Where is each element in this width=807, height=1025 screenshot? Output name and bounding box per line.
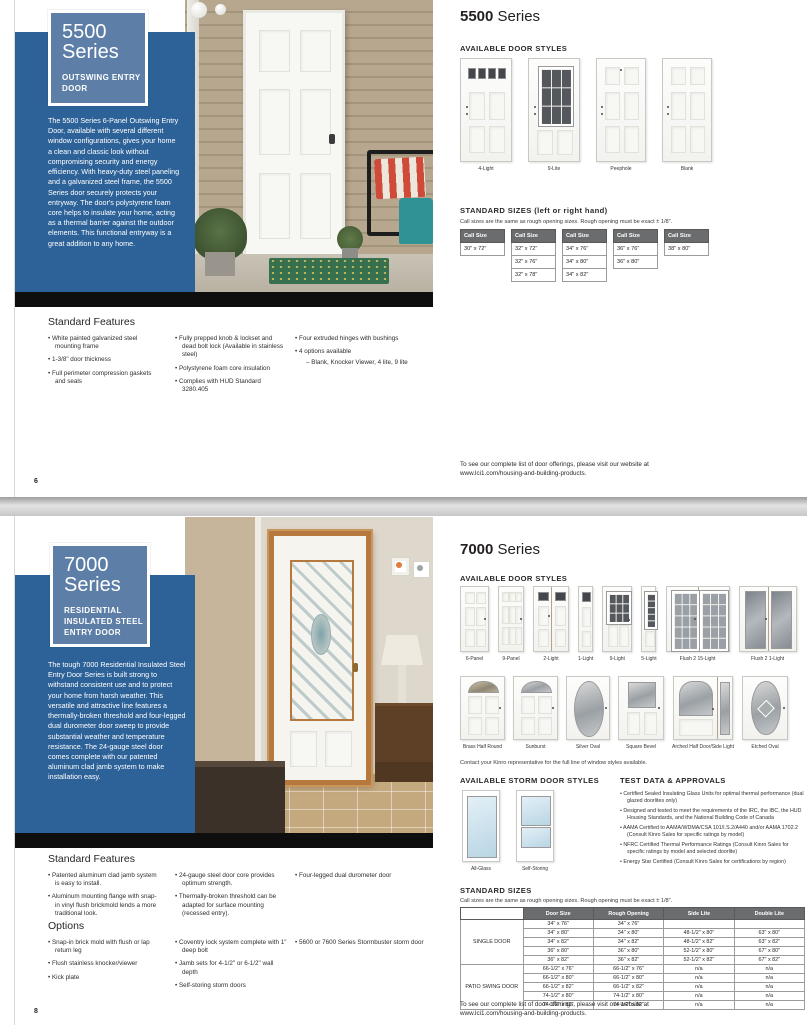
catalog-spread: 5500 Series OUTSWING ENTRY DOOR The 5500… [0, 0, 807, 1025]
door-style-label: Etched Oval [751, 744, 778, 750]
sizes-table-cell: 66-1/2" x 76" [523, 965, 593, 974]
page-number: 6 [34, 478, 38, 485]
door-style-light9: 9-Light [602, 586, 632, 662]
feature-bullet: Blank, Knocker Viewer, 4 lite, 9 lite [295, 359, 445, 367]
porch-light-globe [191, 2, 207, 18]
door-style-label: 6-Panel [466, 656, 483, 662]
door-image-squarebevel [618, 676, 664, 740]
page-title-number: 5500 [460, 8, 493, 25]
feature-bullet: Full perimeter compression gaskets and s… [48, 370, 161, 386]
page-divider [0, 497, 807, 516]
sizes-table-column-header: Double Lite [734, 908, 804, 920]
call-size-cell: 30" x 72" [461, 243, 505, 256]
sizes-table-cell: 52-1/2" x 82" [664, 956, 734, 965]
door-style-etchedoval: Etched Oval [742, 676, 788, 750]
sizes-table-cell: 66-1/2" x 80" [593, 974, 663, 983]
sizes-table-cell: 34" x 80" [593, 929, 663, 938]
sizes-table-cell: 36" x 82" [523, 956, 593, 965]
door-style-sunburst: Sunburst [513, 676, 558, 750]
sizes-table-cell: 66-1/2" x 82" [523, 983, 593, 992]
feature-bullet: Thermally-broken threshold can be adapte… [175, 893, 287, 918]
sizes-note-5500: Call sizes are the same as rough opening… [460, 219, 672, 225]
door-image-peephole [596, 58, 646, 162]
door-image-lite9 [528, 58, 580, 162]
call-size-cell: 32" x 76" [512, 256, 556, 269]
door-image-light5 [641, 586, 656, 652]
black-band [15, 292, 433, 307]
doormat [269, 258, 389, 284]
call-size-cell: 38" x 80" [665, 243, 709, 256]
options-7000: OptionsSnap-in brick mold with flush or … [48, 920, 448, 995]
page-title-word: Series [493, 541, 540, 558]
test-data-bullet: NFRC Certified Thermal Performance Ratin… [620, 842, 806, 856]
page-title-5500: 5500 Series [460, 8, 540, 25]
door-style-label: Brass Half Round [463, 744, 502, 750]
sizes-table-cell: 34" x 82" [523, 938, 593, 947]
sizes-table-cell: 34" x 76" [523, 920, 593, 929]
footer-7000: To see our complete list of door offerin… [460, 1000, 649, 1018]
features-columns: Snap-in brick mold with flush or lap ret… [48, 939, 448, 995]
feature-bullet: Jamb sets for 4-1/2" or 6-1/2" wall dept… [175, 960, 287, 976]
sizes-table-cell: 66-1/2" x 76" [593, 965, 663, 974]
door-style-blank: Blank [662, 58, 712, 172]
door-image-etchedoval [742, 676, 788, 740]
test-data-list: Certified Sealed Insulating Glass Units … [620, 791, 806, 866]
art-dot-orange [396, 562, 402, 568]
sizes-table-cell: 48-1/2" x 82" [664, 938, 734, 947]
test-data-heading: TEST DATA & APPROVALS [620, 776, 806, 785]
feature-bullet: Four-legged dual durometer door [295, 872, 445, 880]
door-style-label: Flush 2 15-Light [680, 656, 716, 662]
feature-bullet: Coventry lock system complete with 1" de… [175, 939, 287, 955]
footer-5500: To see our complete list of door offerin… [460, 460, 649, 478]
features-heading: Standard Features [48, 853, 448, 865]
badge-subtitle: OUTSWING ENTRY DOOR [62, 72, 150, 94]
feature-bullet: Self-storing storm doors [175, 982, 287, 990]
test-data-bullet: AAMA Certified to AAMA/WDMA/CSA 101/I.S.… [620, 825, 806, 839]
plant-pot [205, 252, 235, 276]
sizes-table-cell: 67" x 80" [734, 947, 804, 956]
badge-word: Series [64, 575, 139, 595]
sizes-table-cell: 63" x 80" [734, 929, 804, 938]
page-number: 8 [34, 1008, 38, 1015]
feature-bullet: 1-3/8" door thickness [48, 356, 161, 364]
call-size-header: Call Size [665, 230, 709, 243]
sizes-table-group-label: SINGLE DOOR [461, 920, 524, 965]
door-styles-row-5500: 4-Light9-LitePeepholeBlank [460, 58, 712, 172]
feature-bullet: Kick plate [48, 974, 161, 982]
standard-sizes-heading-7000: STANDARD SIZES [460, 886, 532, 895]
sizes-table-cell: 48-1/2" x 80" [664, 929, 734, 938]
sizes-table-cell: n/a [664, 965, 734, 974]
door-image-ovalsilver [566, 676, 610, 740]
nightstand [375, 703, 433, 782]
call-size-header: Call Size [512, 230, 556, 243]
series-badge-5500: 5500 Series OUTSWING ENTRY DOOR [48, 10, 148, 106]
glass-medallion [311, 614, 331, 655]
sizes-table-cell: 34" x 76" [593, 920, 663, 929]
call-size-table: Call Size34" x 76"34" x 80"34" x 82" [562, 229, 607, 282]
door-style-label: 4-Light [478, 166, 493, 172]
sizes-table-column-header: Door Size [523, 908, 593, 920]
door-style-p9: 9-Panel [498, 586, 524, 662]
call-size-header: Call Size [563, 230, 607, 243]
badge-subtitle: RESIDENTIAL INSULATED STEEL ENTRY DOOR [64, 605, 152, 639]
door-style-label: 9-Lite [548, 166, 561, 172]
standard-sizes-table: Door SizeRough OpeningSide LiteDouble Li… [460, 907, 805, 1010]
feature-bullet: 5600 or 7600 Series Stormbuster storm do… [295, 939, 445, 947]
badge-word: Series [62, 42, 137, 62]
call-size-table: Call Size36" x 76"36" x 80" [613, 229, 658, 269]
footer-link[interactable]: www.lci1.com/housing-and-building-produc… [460, 469, 649, 478]
features-column: 24-gauge steel door core provides optimu… [175, 872, 287, 923]
door-styles-heading-7000: AVAILABLE DOOR STYLES [460, 574, 567, 583]
call-size-cell: 32" x 72" [512, 243, 556, 256]
door-image-light1 [578, 586, 593, 652]
feature-bullet: Snap-in brick mold with flush or lap ret… [48, 939, 161, 955]
sizes-table-cell: 34" x 80" [523, 929, 593, 938]
sizes-table-cell: 52-1/2" x 80" [664, 947, 734, 956]
sizes-table-corner [461, 908, 524, 920]
door-style-light4: 4-Light [460, 58, 512, 172]
call-size-cell: 34" x 82" [563, 269, 607, 282]
features-column: Coventry lock system complete with 1" de… [175, 939, 287, 995]
door-style-label: Peephole [610, 166, 631, 172]
door-image-allglass [462, 790, 500, 862]
door-style-peephole: Peephole [596, 58, 646, 172]
porch-light-globe-small [215, 4, 226, 15]
door-style-light2: 2-Light [533, 586, 569, 662]
door-style-p6: 6-Panel [460, 586, 489, 662]
door-style-light1: 1-Light [578, 586, 593, 662]
call-size-header: Call Size [614, 230, 658, 243]
art-dot-gray [417, 565, 423, 571]
feature-bullet: 4 options available [295, 348, 445, 356]
features-column: Patented aluminum clad jamb system is ea… [48, 872, 161, 923]
black-band [15, 833, 433, 848]
footer-line1: To see our complete list of door offerin… [460, 460, 649, 469]
photo-5500-exterior [185, 0, 433, 292]
sizes-table-cell [734, 920, 804, 929]
call-size-cell: 36" x 76" [614, 243, 658, 256]
striped-pillow [374, 157, 426, 200]
feature-bullet: Complies with HUD Standard 3280.405 [175, 378, 287, 394]
sizes-table-cell [664, 920, 734, 929]
storm-styles-row: All-GlassSelf-Storing [462, 790, 554, 872]
feature-bullet: Fully prepped knob & lockset and dead bo… [175, 335, 287, 360]
door-image [243, 10, 345, 262]
sizes-table-cell: n/a [734, 992, 804, 1001]
feature-bullet: Four extruded hinges with bushings [295, 335, 445, 343]
door-style-ovalsilver: Silver Oval [566, 676, 610, 750]
sizes-table-cell: n/a [734, 1001, 804, 1010]
call-size-table: Call Size32" x 72"32" x 76"32" x 78" [511, 229, 556, 282]
sizes-table-cell: 34" x 82" [593, 938, 663, 947]
door-image-light2 [533, 586, 569, 652]
door-style-label: 1-Light [578, 656, 593, 662]
door-image-sunburst [513, 676, 558, 740]
feature-bullet: Patented aluminum clad jamb system is ea… [48, 872, 161, 888]
page-title-7000: 7000 Series [460, 541, 540, 558]
door-style-label: Self-Storing [522, 866, 548, 872]
call-size-tables: Call Size30" x 72"Call Size32" x 72"32" … [460, 229, 709, 282]
series-badge-7000: 7000 Series RESIDENTIAL INSULATED STEEL … [50, 543, 150, 647]
test-data-bullet: Certified Sealed Insulating Glass Units … [620, 791, 806, 805]
door-style-selfstoring: Self-Storing [516, 790, 554, 872]
feature-bullet: Aluminum mounting flange with snap-in vi… [48, 893, 161, 918]
sizes-table-cell: 36" x 80" [523, 947, 593, 956]
standard-features-5500: Standard FeaturesWhite painted galvanize… [48, 316, 448, 399]
page-title-word: Series [493, 8, 540, 25]
standard-features-7000: Standard FeaturesPatented aluminum clad … [48, 853, 448, 923]
feature-bullet: Polystyrene foam core insulation [175, 365, 287, 373]
features-column: Four extruded hinges with bushings4 opti… [295, 335, 445, 399]
door-image-halfround [460, 676, 505, 740]
features-column: Snap-in brick mold with flush or lap ret… [48, 939, 161, 995]
call-size-header: Call Size [461, 230, 505, 243]
features-heading: Options [48, 920, 448, 932]
door-style-label: Arched Half Door/Side Light [672, 744, 734, 750]
door-style-label: 9-Light [610, 656, 625, 662]
door-image-selfstoring [516, 790, 554, 862]
entry-door-image [269, 531, 371, 785]
badge-number: 7000 [64, 555, 139, 575]
call-size-table: Call Size38" x 80" [664, 229, 709, 256]
call-size-cell: 34" x 76" [563, 243, 607, 256]
features-column: Fully prepped knob & lockset and dead bo… [175, 335, 287, 399]
door-style-label: Sunburst [525, 744, 545, 750]
door-handle [329, 134, 335, 144]
door-style-light5: 5-Light [641, 586, 656, 662]
sizes-table-column-header: Side Lite [664, 908, 734, 920]
sizes-table-cell: n/a [664, 974, 734, 983]
call-size-cell: 34" x 80" [563, 256, 607, 269]
door-style-flush1: Flush 2 1-Light [739, 586, 797, 662]
test-data-bullet: Designed and tested to meet the requirem… [620, 808, 806, 822]
door-style-label: Silver Oval [576, 744, 600, 750]
sizes-table-cell: n/a [734, 983, 804, 992]
bed [185, 761, 285, 833]
features-columns: Patented aluminum clad jamb system is ea… [48, 872, 448, 923]
door-style-label: 5-Light [641, 656, 656, 662]
door-styles-row1-7000: 6-Panel9-Panel2-Light1-Light9-Light5-Lig… [460, 586, 797, 662]
sizes-table-cell: n/a [664, 983, 734, 992]
features-column: Four-legged dual durometer door [295, 872, 445, 923]
door-style-label: All-Glass [471, 866, 491, 872]
sizes-table-cell: 63" x 82" [734, 938, 804, 947]
door-image-light4 [460, 58, 512, 162]
door-styles-heading-5500: AVAILABLE DOOR STYLES [460, 44, 567, 53]
door-styles-row2-7000: Brass Half RoundSunburstSilver OvalSquar… [460, 676, 788, 750]
styles-note-7000: Contact your Kinro representative for th… [460, 760, 647, 766]
photo-7000-interior [185, 517, 433, 833]
door-image-p6 [460, 586, 489, 652]
door-style-label: Blank [681, 166, 694, 172]
intro-text-7000: The tough 7000 Residential Insulated Ste… [48, 660, 186, 783]
sizes-table-cell: 66-1/2" x 80" [523, 974, 593, 983]
feature-bullet: 24-gauge steel door core provides optimu… [175, 872, 287, 888]
sizes-table-cell: 67" x 82" [734, 956, 804, 965]
intro-text-5500: The 5500 Series 6-Panel Outswing Entry D… [48, 116, 181, 249]
door-style-label: Flush 2 1-Light [751, 656, 784, 662]
storm-styles-heading: AVAILABLE STORM DOOR STYLES [460, 776, 599, 785]
door-style-squarebevel: Square Bevel [618, 676, 664, 750]
badge-number: 5500 [62, 22, 137, 42]
call-size-cell: 36" x 80" [614, 256, 658, 269]
lamp-body [398, 665, 406, 703]
sizes-table-cell: n/a [664, 1001, 734, 1010]
lamp-shade [381, 635, 423, 665]
call-size-cell: 32" x 78" [512, 269, 556, 282]
door-style-allglass: All-Glass [462, 790, 500, 872]
sizes-table-column-header: Rough Opening [593, 908, 663, 920]
features-columns: White painted galvanized steel mounting … [48, 335, 448, 399]
door-image-flush15 [666, 586, 730, 652]
door-image-light9 [602, 586, 632, 652]
teal-chair [399, 198, 433, 244]
door-image-flush1 [739, 586, 797, 652]
door-style-halfround: Brass Half Round [460, 676, 505, 750]
door-style-label: 9-Panel [502, 656, 519, 662]
door-style-lite9: 9-Lite [528, 58, 580, 172]
door-style-label: Square Bevel [626, 744, 656, 750]
call-size-table: Call Size30" x 72" [460, 229, 505, 256]
sizes-table-cell: n/a [664, 992, 734, 1001]
door-style-archedhalf: Arched Half Door/Side Light [672, 676, 734, 750]
footer-link[interactable]: www.lci1.com/housing-and-building-produc… [460, 1009, 649, 1018]
door-style-flush15: Flush 2 15-Light [666, 586, 730, 662]
features-heading: Standard Features [48, 316, 448, 328]
features-column: 5600 or 7600 Series Stormbuster storm do… [295, 939, 445, 995]
footer-line1: To see our complete list of door offerin… [460, 1000, 649, 1009]
test-data-approvals: TEST DATA & APPROVALS Certified Sealed I… [620, 776, 806, 869]
sizes-table-cell: 36" x 82" [593, 956, 663, 965]
test-data-bullet: Energy Star Certified (Consult Kinro Sal… [620, 859, 806, 866]
standard-sizes-heading-5500: STANDARD SIZES (left or right hand) [460, 206, 608, 215]
sizes-note-7000: Call sizes are the same as rough opening… [460, 898, 672, 904]
sizes-table: Door SizeRough OpeningSide LiteDouble Li… [460, 907, 805, 1010]
sizes-table-cell: 36" x 80" [593, 947, 663, 956]
sizes-table-cell: n/a [734, 974, 804, 983]
feature-bullet: Flush stainless knocker/viewer [48, 960, 161, 968]
door-image-archedhalf [673, 676, 733, 740]
page-title-number: 7000 [460, 541, 493, 558]
door-image-p9 [498, 586, 524, 652]
sizes-table-cell: 66-1/2" x 82" [593, 983, 663, 992]
door-style-label: 2-Light [543, 656, 558, 662]
door-handle-brass [353, 663, 358, 672]
feature-bullet: White painted galvanized steel mounting … [48, 335, 161, 351]
door-image-blank [662, 58, 712, 162]
sizes-table-cell: n/a [734, 965, 804, 974]
features-column: White painted galvanized steel mounting … [48, 335, 161, 399]
